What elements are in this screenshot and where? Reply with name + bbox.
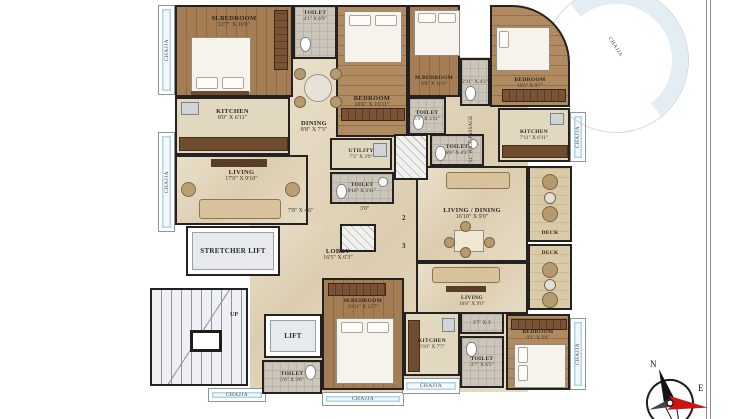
compass-icon: N E [628, 353, 712, 419]
chajja-label: CHAJJA [575, 126, 581, 148]
bed [414, 10, 460, 56]
wardrobe [341, 108, 405, 121]
room-dims: 17'0" X 9'10" [225, 176, 257, 183]
room-label: STRETCHER LIFT [200, 247, 265, 255]
dining-chair [330, 96, 342, 108]
chajja-strip-right-bottom: CHAJJA [570, 318, 586, 390]
bed [514, 344, 566, 388]
basin [378, 177, 388, 187]
dining-chair [460, 221, 471, 232]
room-dims: 9'2" X 9'6" [522, 335, 553, 341]
chajja-label: CHAJJA [575, 343, 581, 365]
room-toilet-2: TOILET 5'9" X 3'11" [408, 97, 446, 135]
room-dims: 5'9" X 3'11" [414, 116, 440, 122]
room-dims: 16'10" X 9'0" [443, 214, 501, 221]
bed-headboard [191, 91, 249, 95]
room-kitchen-3: KITCHEN 6'10" X 7'7" [404, 312, 460, 376]
room-label: DINING [282, 120, 346, 127]
room-dims: 8'8" X 7'3" [282, 127, 346, 134]
room-dims: 12'7" X 10'0" [212, 22, 257, 29]
wardrobe [328, 283, 386, 296]
room-bedroom-1: BEDROOM 10'0" X 15'11" [336, 5, 408, 137]
bed [496, 27, 550, 71]
room-label: BEDROOM [514, 77, 545, 83]
room-dims: 10'5" X 9'7" [514, 83, 545, 89]
chajja-strip-bottom-left: CHAJJA [208, 388, 266, 402]
chajja-label: CHAJJA [420, 383, 442, 389]
wc [336, 184, 347, 199]
fridge [181, 102, 199, 115]
room-label: M.BEDROOM [415, 75, 453, 81]
room-label: LIFT [284, 332, 302, 340]
deck-table [544, 279, 556, 291]
room-m-bedroom-1: M.BEDROOM 12'7" X 10'0" [175, 5, 293, 97]
room-label: DECK [541, 250, 558, 256]
compass-east-label: E [698, 383, 704, 393]
sofa [199, 199, 281, 219]
room-dims: 16'8" X 9'0" [459, 301, 485, 307]
room-deck-2: DECK [528, 244, 572, 310]
armchair [285, 182, 300, 197]
room-label: BEDROOM [354, 95, 390, 102]
bed [336, 318, 394, 384]
room-dims: 8'0" X 6'11" [216, 115, 249, 122]
room-kitchen-2: KITCHEN 7'11" X 6'11" [498, 108, 570, 162]
sofa [446, 172, 510, 189]
wc [300, 37, 311, 52]
room-dims: 6'10" X 7'7" [418, 344, 446, 350]
room-dims: 7'3" X 3'9" [348, 154, 373, 160]
chajja-label: CHAJJA [226, 392, 248, 398]
room-toilet-6: TOILET 3'7" X 6'5" [460, 336, 504, 388]
room-dims: 16'5" X 6'3" [300, 255, 376, 262]
room-deck-1: DECK [528, 166, 572, 242]
room-dims: 2'11" X 4'3" [462, 79, 488, 85]
room-label: LIVING [225, 169, 257, 176]
wardrobe [502, 89, 566, 102]
deck-chair [542, 262, 558, 278]
room-dims: 3'7" X 6'5" [470, 362, 493, 368]
kitchen-counter [179, 137, 288, 151]
washing-machine [373, 143, 387, 157]
wc [435, 146, 446, 161]
bed [191, 37, 251, 93]
room-lobby: LOBBY 16'5" X 6'3" [300, 248, 376, 270]
dim-3-0-label: 3'0" [360, 206, 369, 212]
room-living-dining: LIVING / DINING 16'10" X 9'0" [416, 166, 528, 262]
chajja-label: CHAJJA [164, 171, 170, 193]
wardrobe [274, 10, 288, 70]
room-dims: 7'11" X 6'11" [520, 135, 548, 141]
room-bedroom-3: BEDROOM 9'2" X 9'6" [506, 314, 570, 390]
wc [465, 86, 476, 101]
room-label: DECK [541, 230, 558, 236]
dining-chair [484, 237, 495, 248]
floor-plan-canvas: CHAJJA CHAJJA CHAJJA CHAJJA CHAJJA CHAJJ… [0, 0, 745, 419]
sofa [432, 267, 500, 283]
room-dims: 10'0" X 15'11" [354, 102, 390, 109]
deck-table [544, 192, 556, 204]
room-toilet-5: TOILET 5'6" X 3'6" [262, 360, 322, 394]
room-label: LIVING [459, 295, 485, 301]
room-m-bedroom-3: M.BEDROOM 10'11" X 12'7" [322, 278, 404, 390]
dining-chair [330, 68, 342, 80]
room-label: LOBBY [300, 248, 376, 255]
passage-label: 2'11" WIDE PASSAGE [468, 108, 474, 166]
deck-chair [542, 292, 558, 308]
kitchen-counter [502, 145, 568, 158]
stretcher-lift: STRETCHER LIFT [186, 226, 280, 276]
tv-unit [211, 159, 267, 167]
deck-chair [542, 174, 558, 190]
room-dims: 6'0" X 4'1" [445, 150, 468, 156]
room-dims: 3'7" X 3' [473, 320, 492, 326]
room-dims: 5'6" X 3'6" [280, 377, 303, 383]
bed [344, 11, 402, 63]
room-dining-1: DINING 8'8" X 7'3" [282, 120, 346, 142]
tv-unit [446, 286, 486, 292]
room-label: M.BEDROOM [212, 15, 257, 22]
chajja-label: CHAJJA [352, 396, 374, 402]
armchair [181, 182, 196, 197]
service-duct-hatch [394, 134, 428, 180]
lift: LIFT [264, 314, 322, 358]
wc [305, 365, 316, 380]
room-toilet-small-1: 2'11" X 4'3" [460, 58, 490, 106]
passage-dim-label: 7'8" X 4'6" [288, 208, 314, 214]
fridge [442, 318, 455, 332]
chajja-strip-left-mid: CHAJJA [158, 132, 175, 232]
chajja-strip-bottom-center: CHAJJA [322, 392, 404, 406]
up-label: UP [230, 312, 238, 318]
chajja-strip-bottom-kitchen: CHAJJA [402, 378, 460, 394]
chajja-label: CHAJJA [164, 39, 170, 61]
room-kitchen-1: KITCHEN 8'0" X 6'11" [175, 97, 290, 155]
wc [466, 342, 477, 357]
deck-chair [542, 206, 558, 222]
dining-chair [294, 96, 306, 108]
room-utility: UTILITY 7'3" X 3'9" [330, 138, 392, 170]
room-dims: 9'0" X 11'6" [415, 81, 453, 87]
room-label: KITCHEN [216, 108, 249, 115]
room-toilet-3: TOILET 9'10" X 3'11" [330, 172, 394, 204]
room-living-2: LIVING 16'8" X 9'0" [416, 262, 528, 314]
room-living-1: LIVING 17'0" X 9'10" [175, 155, 308, 225]
dining-chair [294, 68, 306, 80]
room-toilet-small-2: 3'7" X 3' [460, 312, 504, 334]
room-toilet-4: TOILET 6'0" X 4'1" [430, 134, 484, 166]
staircase: UP [150, 288, 248, 386]
door-number-3: 3 [402, 242, 406, 250]
stair-newel [190, 330, 222, 352]
room-dims: 4'1" X 6'9" [303, 16, 326, 22]
dining-chair [460, 247, 471, 258]
room-label: LIVING / DINING [443, 207, 501, 214]
room-toilet-1: TOILET 4'1" X 6'9" [293, 5, 337, 59]
dining-chair [444, 237, 455, 248]
dining-table [304, 74, 332, 102]
door-number-2: 2 [402, 214, 406, 222]
room-dims: 10'11" X 12'7" [344, 304, 382, 310]
fridge [550, 113, 564, 125]
compass-north-label: N [650, 359, 657, 369]
chajja-strip-top-left: CHAJJA [158, 5, 175, 95]
room-m-bedroom-2: M.BEDROOM 9'0" X 11'6" [408, 5, 460, 97]
room-dims: 9'10" X 3'11" [348, 188, 376, 194]
